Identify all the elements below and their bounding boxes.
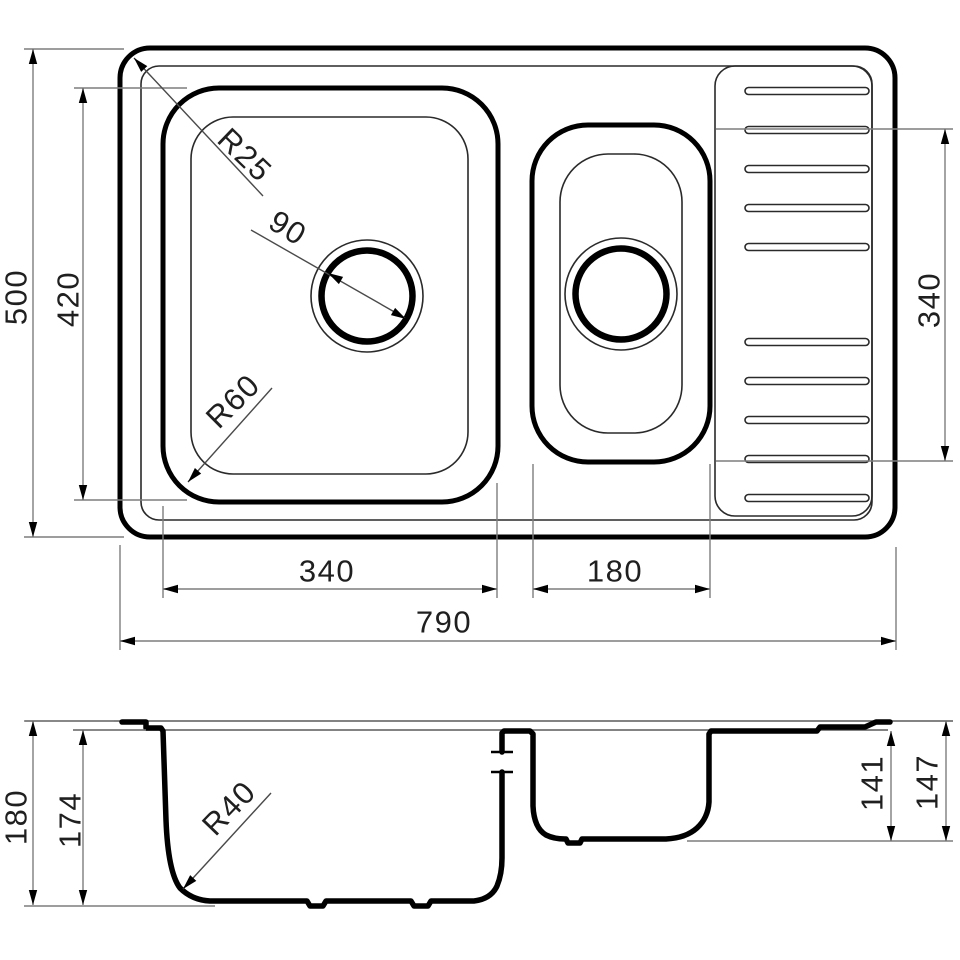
drainboard-rib [745, 417, 869, 424]
callout-r25: R25 [131, 55, 279, 196]
main-bowl-outline [163, 88, 498, 502]
arrowhead [29, 49, 37, 64]
arrowhead [29, 522, 37, 537]
dim-label-174: 174 [53, 792, 88, 848]
drainboard [715, 66, 872, 516]
arrowhead [881, 637, 896, 645]
drainboard-rib [745, 127, 869, 134]
sink-technical-drawing: 500 420 340 340 [0, 0, 960, 960]
section-view: 180 174 141 147 R40 [0, 721, 953, 906]
drainboard-rib [745, 88, 869, 95]
main-bowl [163, 88, 498, 502]
drainboard-rib [745, 244, 869, 251]
dim-small-bowl-width: 180 [533, 464, 710, 598]
dim-label-180-bottom: 180 [587, 554, 643, 589]
dim-label-141: 141 [855, 755, 890, 811]
plan-view: 500 420 340 340 [0, 48, 953, 650]
arrowhead [79, 485, 87, 500]
arrowhead [482, 585, 497, 593]
dim-label-340-right: 340 [912, 272, 947, 328]
arrowhead [942, 826, 950, 841]
arrowhead [79, 88, 87, 103]
arrowhead [887, 731, 895, 746]
callout-r40: R40 [180, 774, 271, 892]
drainboard-rib [745, 166, 869, 173]
callout-r60: R60 [185, 367, 272, 485]
arrowhead [79, 730, 87, 745]
small-bowl-outline [532, 125, 710, 462]
arrowhead [942, 721, 950, 736]
drawing-svg: 500 420 340 340 [0, 0, 960, 960]
dim-label-147: 147 [910, 754, 945, 810]
dim-small-bowl-height: 147 [910, 721, 951, 841]
small-bowl [532, 125, 710, 462]
dim-label-790: 790 [416, 605, 472, 640]
dim-label-420: 420 [51, 271, 86, 327]
callout-drain-diameter: 90 [251, 203, 408, 322]
drainboard-rib [745, 205, 869, 212]
drainboard-rib [745, 339, 869, 346]
dim-label-180-section: 180 [0, 789, 34, 845]
arrowhead [941, 446, 949, 461]
callout-label-r40: R40 [195, 774, 263, 842]
dim-small-bowl-depth: 141 [855, 731, 896, 841]
drainboard-rib [745, 378, 869, 385]
drainboard-ribs [745, 88, 869, 502]
callout-label-r60: R60 [199, 367, 267, 435]
dim-label-500: 500 [0, 269, 34, 325]
arrowhead [79, 890, 87, 905]
small-drain-hole [576, 249, 667, 340]
dim-main-bowl-depth: 174 [53, 730, 147, 905]
dim-label-340-bottom: 340 [299, 554, 355, 589]
drainboard-rib [745, 495, 869, 502]
small-drain-recess [565, 238, 677, 350]
arrowhead [163, 585, 178, 593]
arrowhead [941, 129, 949, 144]
arrowhead [29, 721, 37, 736]
callout-label-r25: R25 [211, 121, 279, 189]
callout-label-90: 90 [263, 203, 313, 253]
arrowhead [533, 585, 548, 593]
arrowhead [29, 890, 37, 905]
arrowhead [887, 826, 895, 841]
dim-drainboard-length: 340 [716, 129, 953, 461]
dim-overall-width: 790 [120, 545, 896, 650]
arrowhead [120, 637, 135, 645]
arrowhead [695, 585, 710, 593]
faucet-hole-break-marks [491, 752, 513, 772]
